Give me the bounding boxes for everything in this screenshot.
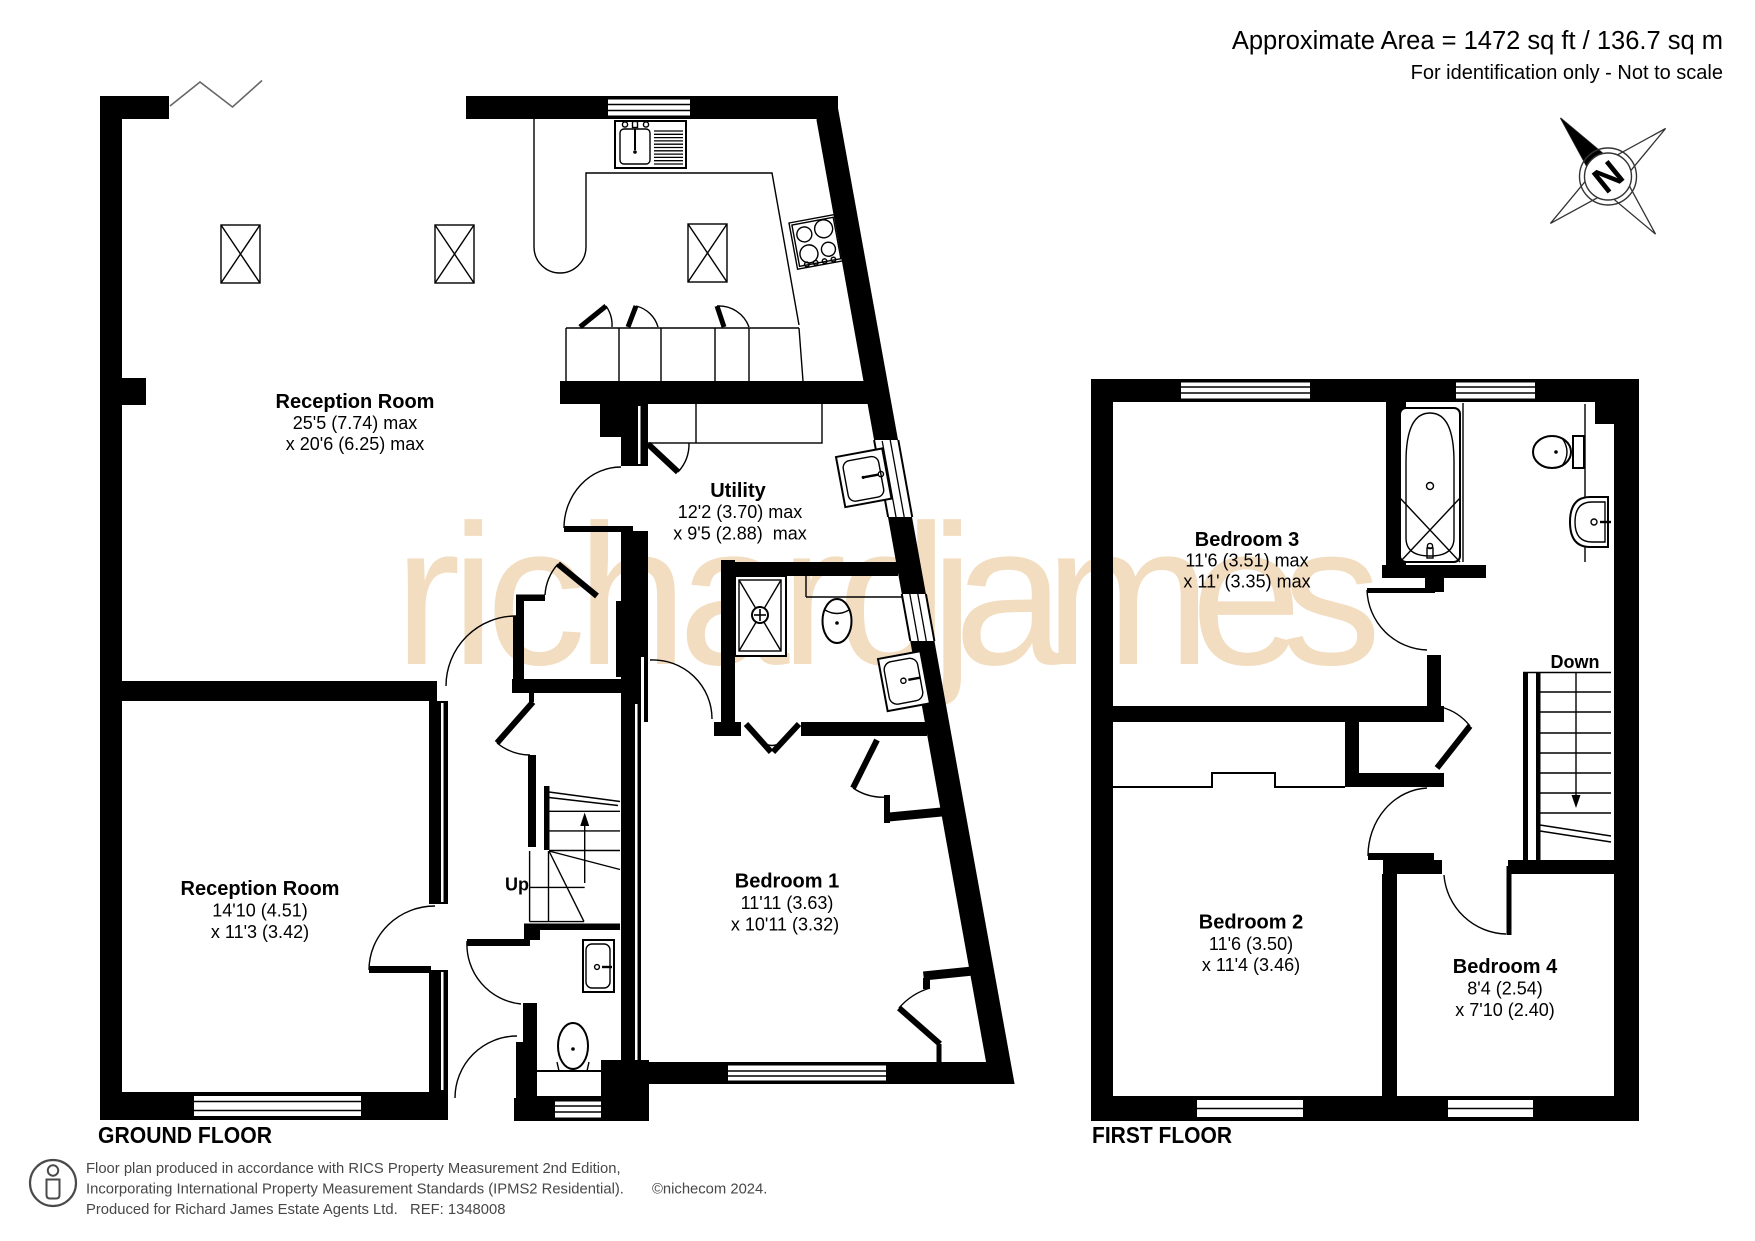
svg-text:Produced for Richard James Est: Produced for Richard James Estate Agents…	[86, 1202, 505, 1218]
svg-text:Reception Room: Reception Room	[276, 391, 435, 413]
svg-text:For identification only - Not: For identification only - Not to scale	[1411, 62, 1723, 84]
svg-text:11'11 (3.63): 11'11 (3.63)	[741, 893, 834, 913]
svg-text:FIRST FLOOR: FIRST FLOOR	[1092, 1122, 1232, 1148]
svg-text:Bedroom 1: Bedroom 1	[735, 871, 839, 893]
svg-text:x 11'4 (3.46): x 11'4 (3.46)	[1202, 955, 1300, 975]
svg-text:x 20'6 (6.25) max: x 20'6 (6.25) max	[286, 434, 425, 454]
svg-text:11'6 (3.51) max: 11'6 (3.51) max	[1185, 551, 1308, 571]
svg-text:x 7'10 (2.40): x 7'10 (2.40)	[1455, 1000, 1555, 1020]
svg-text:25'5 (7.74) max: 25'5 (7.74) max	[293, 413, 418, 433]
svg-text:12'2 (3.70) max: 12'2 (3.70) max	[678, 502, 803, 522]
svg-text:Down: Down	[1551, 652, 1600, 672]
svg-text:Utility: Utility	[710, 480, 766, 502]
svg-text:©nichecom 2024.: ©nichecom 2024.	[652, 1182, 767, 1198]
svg-text:x 10'11 (3.32): x 10'11 (3.32)	[731, 915, 839, 935]
svg-text:Bedroom 2: Bedroom 2	[1199, 912, 1303, 934]
svg-text:Approximate Area = 1472 sq ft: Approximate Area = 1472 sq ft / 136.7 sq…	[1232, 27, 1723, 55]
svg-text:Floor plan produced in accorda: Floor plan produced in accordance with R…	[86, 1161, 621, 1177]
svg-text:8'4 (2.54): 8'4 (2.54)	[1467, 979, 1542, 999]
svg-text:Reception Room: Reception Room	[181, 878, 340, 900]
svg-text:x 11'3 (3.42): x 11'3 (3.42)	[211, 922, 309, 942]
svg-text:Bedroom 4: Bedroom 4	[1453, 956, 1558, 978]
svg-text:x 11' (3.35) max: x 11' (3.35) max	[1183, 572, 1310, 592]
svg-text:14'10 (4.51): 14'10 (4.51)	[212, 901, 308, 921]
svg-text:Incorporating International Pr: Incorporating International Property Mea…	[86, 1182, 624, 1198]
svg-text:GROUND FLOOR: GROUND FLOOR	[98, 1122, 272, 1148]
svg-text:Bedroom 3: Bedroom 3	[1195, 529, 1299, 551]
svg-text:x 9'5 (2.88) max: x 9'5 (2.88) max	[673, 524, 807, 544]
svg-text:11'6 (3.50): 11'6 (3.50)	[1209, 934, 1293, 954]
svg-text:Up: Up	[505, 875, 529, 895]
